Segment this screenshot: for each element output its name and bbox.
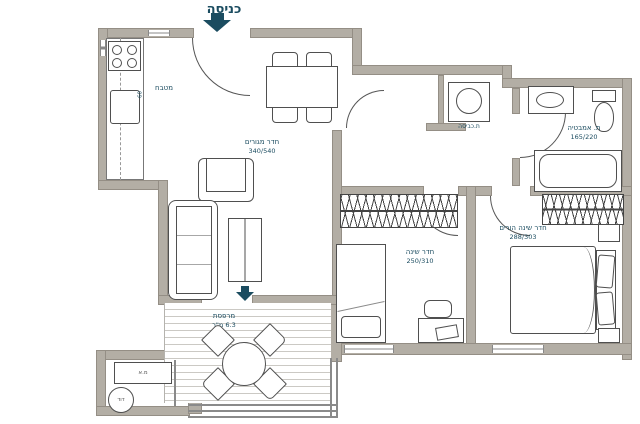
living-room-name: חדר מגורים xyxy=(245,138,279,146)
living-room-dims: 340/540 xyxy=(228,147,296,156)
desk-chair xyxy=(424,300,452,318)
closet xyxy=(340,194,458,228)
window xyxy=(344,345,394,353)
ac-unit-label: מ.א xyxy=(114,370,172,376)
pillow xyxy=(596,291,616,325)
bathtub-inner xyxy=(539,154,617,188)
stove-burner xyxy=(112,58,122,68)
wall xyxy=(352,65,512,75)
stove-burner xyxy=(112,45,122,55)
refrigerator xyxy=(110,90,140,124)
wall xyxy=(512,88,520,114)
entrance-arrow-icon xyxy=(203,20,231,32)
balcony-label: מרפסת 6.3 מ"ר xyxy=(194,312,254,330)
water-heater-label: דוד xyxy=(108,397,134,403)
wall xyxy=(158,180,168,305)
balcony-name: מרפסת xyxy=(213,312,235,320)
stove-burner xyxy=(127,45,137,55)
window xyxy=(492,345,544,353)
bathroom-dims: 165/220 xyxy=(550,133,618,142)
kitchen-dimension: 60 xyxy=(137,88,146,102)
bathroom-label: ת. אמבטיה 165/220 xyxy=(550,124,618,142)
wall xyxy=(438,75,444,125)
sofa-cushions xyxy=(176,206,212,294)
railing xyxy=(188,410,338,412)
wall xyxy=(98,28,194,38)
kitchen-label: מטבח xyxy=(146,84,182,93)
master-bedroom-dims: 288/303 xyxy=(488,233,558,242)
wall xyxy=(466,186,476,355)
entrance-label: כניסה xyxy=(192,2,256,17)
pillow xyxy=(596,254,616,288)
bedroom-label: חדר שינה 250/310 xyxy=(392,248,448,266)
entrance-door-arc xyxy=(192,38,250,96)
bedroom-dims: 250/310 xyxy=(392,257,448,266)
master-bedroom-name: חדר שינה הורים xyxy=(499,224,546,232)
washing-machine-drum xyxy=(456,88,482,114)
stove-burner xyxy=(127,58,137,68)
floor-plan: כניסה מטבח 60 חדר מגורים 340/540 ת.כביסה… xyxy=(0,0,640,424)
wall xyxy=(250,28,362,38)
laundry-label: ת.כביסה xyxy=(442,122,496,131)
wall xyxy=(512,158,520,186)
nightstand xyxy=(598,224,620,242)
service-partition xyxy=(174,360,176,406)
bedroom-name: חדר שינה xyxy=(406,248,434,256)
coffee-table xyxy=(228,218,262,282)
armchair-seat xyxy=(206,158,246,192)
master-bedroom-label: חדר שינה הורים 288/303 xyxy=(488,224,558,242)
balcony-table xyxy=(222,342,266,386)
bathroom-name: ת. אמבטיה xyxy=(567,124,600,132)
railing xyxy=(188,416,338,418)
pillow xyxy=(341,316,381,338)
railing xyxy=(330,358,332,416)
nightstand xyxy=(598,328,620,343)
closet xyxy=(542,194,624,225)
dining-chair xyxy=(272,107,298,123)
dining-chair xyxy=(306,107,332,123)
railing xyxy=(336,358,338,416)
toilet-tank xyxy=(592,90,616,102)
entrance-arrow-icon xyxy=(211,13,224,20)
bathroom-sink xyxy=(536,92,564,108)
window xyxy=(148,30,170,36)
balcony-arrow-icon xyxy=(236,292,254,301)
living-room-label: חדר מגורים 340/540 xyxy=(228,138,296,156)
railing xyxy=(188,404,338,406)
dining-table xyxy=(266,66,338,108)
hallway-door-arc xyxy=(346,90,384,128)
